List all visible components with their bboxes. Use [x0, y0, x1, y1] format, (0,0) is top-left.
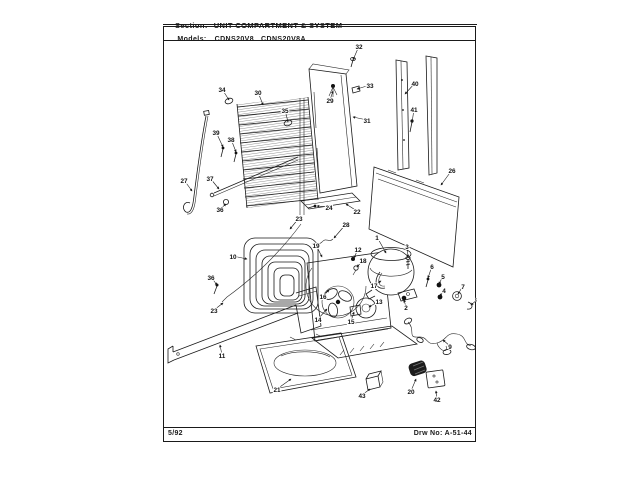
callout-label: 12 — [354, 247, 362, 254]
clip-8 — [467, 302, 472, 309]
callout-label: 24 — [325, 205, 333, 212]
fan-motor-13 — [356, 298, 376, 318]
callout-label: 16 — [319, 294, 327, 301]
callout-label: 34 — [218, 87, 226, 94]
callout-label: 38 — [227, 137, 235, 144]
coil-clip-34 — [224, 97, 233, 105]
footer-date: 5/92 — [168, 430, 183, 437]
grommet-4 — [438, 295, 443, 300]
grommet-5 — [437, 283, 442, 288]
callout-label: 7 — [461, 284, 465, 291]
callout-label: 41 — [410, 107, 418, 114]
footer-row: 5/92 Drw No: A-51-44 — [168, 430, 472, 437]
callout-label: 30 — [254, 90, 262, 97]
callout-label: 3 — [405, 244, 409, 251]
heat-exchanger-tube-27 — [183, 111, 209, 215]
callout-label: 33 — [366, 83, 374, 90]
callout-label: 17 — [370, 283, 378, 290]
compressor-1 — [366, 248, 417, 302]
callout-label: 43 — [358, 393, 366, 400]
fan-blade-14 — [322, 286, 354, 318]
callout-label: 19 — [312, 243, 320, 250]
callout-label: 1 — [375, 235, 379, 242]
footer-rule — [164, 427, 476, 428]
callout-label: 20 — [407, 389, 415, 396]
cover-plate-42 — [426, 370, 445, 388]
wire-harness-9 — [403, 317, 476, 355]
callout-label: 39 — [212, 130, 220, 137]
condenser-coil — [237, 97, 318, 215]
callout-label: 26 — [448, 168, 456, 175]
panel-screw-32 — [351, 57, 356, 67]
callout-label: 42 — [433, 397, 441, 404]
filler-strip-40 — [396, 60, 409, 170]
callout-label: 28 — [342, 222, 350, 229]
header-rule — [163, 24, 477, 25]
grommet-36-upper — [223, 199, 228, 204]
manual-page: Section:UNIT COMPARTMENT & SYSTEM Models… — [0, 0, 640, 480]
capacitor-20 — [408, 360, 428, 378]
drain-pan-21 — [256, 333, 356, 393]
side-trim-strip — [426, 56, 437, 175]
callout-label: 5 — [441, 274, 445, 281]
rail-screw-36-lower — [214, 284, 219, 295]
clip-33 — [352, 86, 360, 93]
callout-label: 13 — [375, 299, 383, 306]
callout-label: 11 — [219, 353, 226, 360]
exploded-parts-diagram: 3229333140413430353938273736262423222810… — [163, 40, 477, 427]
callout-label: 36 — [216, 207, 224, 214]
relay-43 — [366, 371, 383, 390]
base-plate — [312, 326, 417, 358]
callout-label: 2 — [404, 305, 408, 312]
screw-6 — [426, 278, 429, 287]
callout-label: 37 — [206, 176, 214, 183]
callout-label: 27 — [180, 178, 188, 185]
callout-label: 35 — [281, 108, 289, 115]
callout-label: 21 — [273, 387, 281, 394]
callout-label: 40 — [411, 81, 419, 88]
part-callouts: 3229333140413430353938273736262423222810… — [180, 44, 477, 404]
coil-screw-38 — [234, 152, 237, 162]
callout-label: 14 — [314, 317, 322, 324]
callout-label: 10 — [229, 254, 237, 261]
rear-access-panel — [309, 64, 357, 193]
clamp-18 — [353, 266, 358, 275]
callout-label: 36 — [207, 275, 215, 282]
grommet-2 — [402, 296, 407, 301]
callout-label: 29 — [326, 98, 334, 105]
callout-label: 15 — [347, 319, 355, 326]
mounting-rail-11 — [168, 287, 321, 363]
callout-label: 32 — [355, 44, 363, 51]
callout-label: 9 — [448, 344, 452, 351]
callout-label: 6 — [430, 264, 434, 271]
callout-label: 23 — [295, 216, 303, 223]
callout-label: 23 — [210, 308, 218, 315]
capillary-tube-23 — [222, 224, 301, 302]
condenser-loop-10 — [244, 238, 318, 313]
fastener-29 — [329, 84, 337, 97]
footer-drawing-number: Drw No: A-51-44 — [414, 430, 472, 437]
callout-label: 31 — [363, 118, 371, 125]
strip-screw-41 — [410, 119, 414, 132]
pin-24 — [308, 205, 316, 208]
callout-label: 4 — [442, 288, 446, 295]
grommet-7 — [453, 292, 462, 301]
callout-label: 18 — [359, 258, 367, 265]
callout-label: 8 — [476, 297, 477, 304]
coil-screw-39 — [221, 147, 224, 157]
callout-label: 22 — [353, 209, 361, 216]
